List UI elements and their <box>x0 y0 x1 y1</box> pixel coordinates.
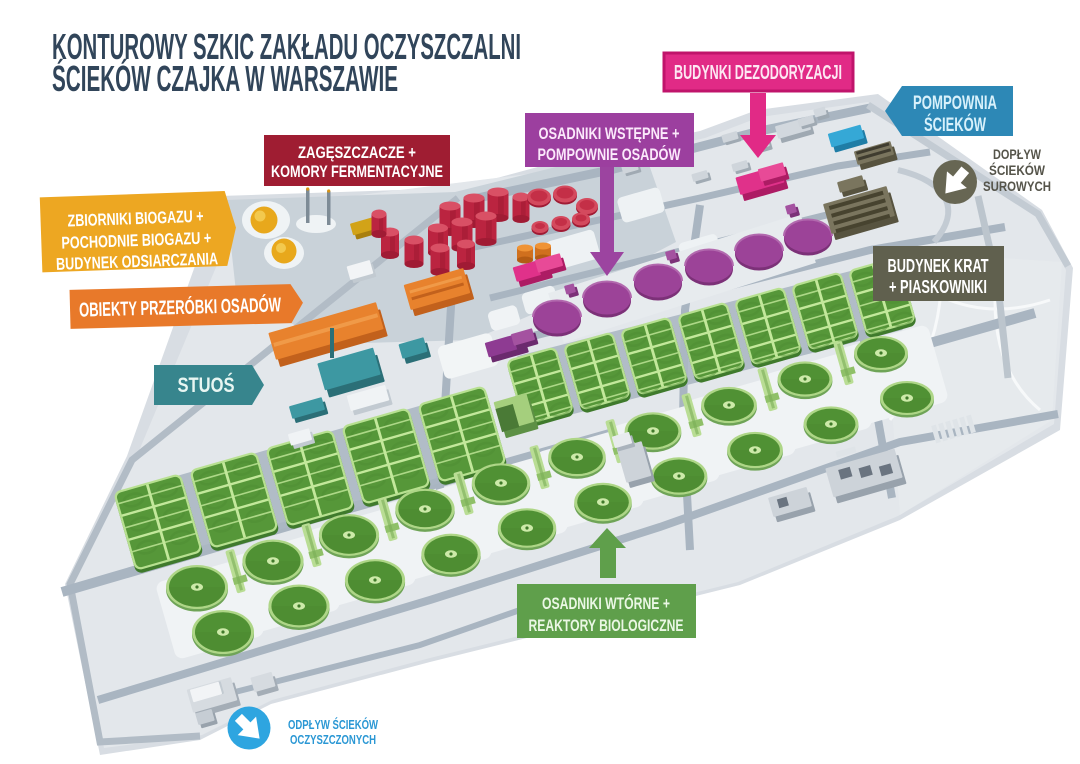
svg-text:ŚCIEKÓW: ŚCIEKÓW <box>989 163 1045 178</box>
svg-text:POMPOWNIA: POMPOWNIA <box>913 93 997 114</box>
svg-text:BUDYNKI DEZODORYZACJI: BUDYNKI DEZODORYZACJI <box>674 62 842 84</box>
svg-text:OCZYSZCZONYCH: OCZYSZCZONYCH <box>290 732 376 747</box>
svg-text:DOPŁYW: DOPŁYW <box>993 147 1041 162</box>
svg-text:BUDYNEK KRAT: BUDYNEK KRAT <box>888 255 989 276</box>
svg-text:ODPŁYW ŚCIEKÓW: ODPŁYW ŚCIEKÓW <box>288 717 379 732</box>
svg-text:OSADNIKI WSTĘPNE +: OSADNIKI WSTĘPNE + <box>539 124 680 143</box>
svg-text:POMPOWNIE OSADÓW: POMPOWNIE OSADÓW <box>538 145 682 164</box>
svg-text:ŚCIEKÓW: ŚCIEKÓW <box>924 114 986 136</box>
svg-text:SUROWYCH: SUROWYCH <box>983 179 1051 194</box>
svg-text:OSADNIKI WTÓRNE +: OSADNIKI WTÓRNE + <box>542 594 670 613</box>
svg-text:REAKTORY BIOLOGICZNE: REAKTORY BIOLOGICZNE <box>529 616 684 635</box>
svg-text:STUOŚ: STUOŚ <box>178 373 235 397</box>
svg-text:+ PIASKOWNIKI: + PIASKOWNIKI <box>889 276 987 297</box>
svg-text:ZAGĘSZCZACZE +: ZAGĘSZCZACZE + <box>298 143 416 162</box>
svg-text:ŚCIEKÓW CZAJKA W WARSZAWIE: ŚCIEKÓW CZAJKA W WARSZAWIE <box>52 57 398 99</box>
svg-text:KOMORY FERMENTACYJNE: KOMORY FERMENTACYJNE <box>271 162 443 181</box>
